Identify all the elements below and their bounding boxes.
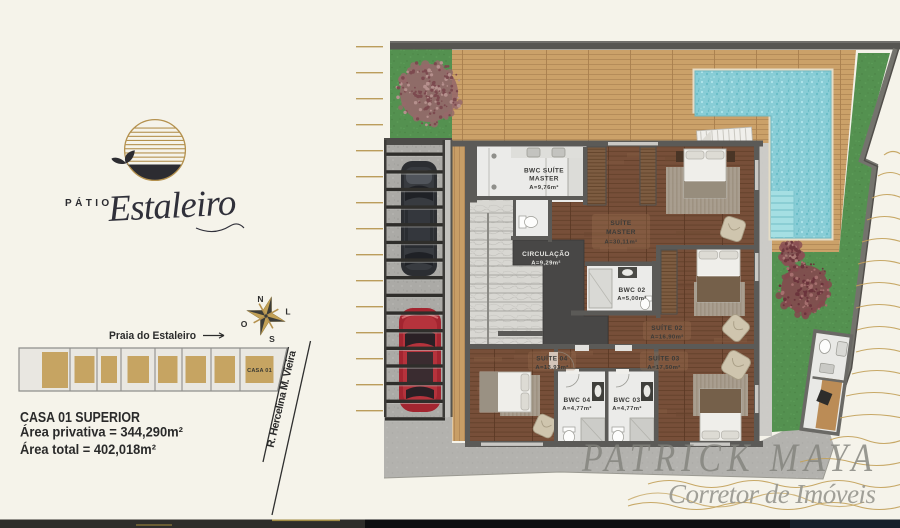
svg-text:PATRICK MAYA: PATRICK MAYA [581,435,878,480]
svg-text:O: O [241,319,248,329]
svg-text:SUÍTE 02: SUÍTE 02 [651,323,682,332]
svg-text:A=30,11m²: A=30,11m² [605,238,638,245]
svg-text:BWC SUÍTE: BWC SUÍTE [524,166,564,175]
svg-text:A=5,00m²: A=5,00m² [617,295,647,302]
svg-text:SUÍTE: SUÍTE [610,218,631,227]
svg-text:BWC 03: BWC 03 [614,397,641,404]
svg-text:L: L [285,307,290,317]
svg-text:S: S [269,334,275,344]
svg-text:CIRCULAÇÃO: CIRCULAÇÃO [522,249,570,258]
svg-text:PÁTIO: PÁTIO [65,196,113,209]
svg-text:Área privativa = 344,290m²: Área privativa = 344,290m² [20,425,183,440]
svg-text:SUÍTE 03: SUÍTE 03 [648,354,679,363]
svg-text:MASTER: MASTER [529,176,559,183]
svg-text:A=4,77m²: A=4,77m² [612,405,642,412]
svg-text:A=9,76m²: A=9,76m² [529,184,559,191]
svg-text:CASA 01: CASA 01 [247,368,272,374]
svg-text:A=9,29m²: A=9,29m² [531,260,561,267]
svg-text:BWC 04: BWC 04 [564,397,591,404]
svg-text:A=4,77m²: A=4,77m² [562,405,592,412]
svg-text:Corretor de Imóveis: Corretor de Imóveis [668,479,876,509]
svg-text:MASTER: MASTER [606,229,636,236]
svg-text:A=16,90m²: A=16,90m² [650,334,683,341]
svg-text:Estaleiro: Estaleiro [106,182,237,230]
svg-text:Praia do Estaleiro: Praia do Estaleiro [109,330,196,342]
svg-text:A=17,50m²: A=17,50m² [647,364,680,371]
svg-text:A=13,93m²: A=13,93m² [535,364,568,371]
svg-text:Área total = 402,018m²: Área total = 402,018m² [20,442,156,457]
svg-text:SUÍTE 04: SUÍTE 04 [536,354,567,363]
svg-text:BWC 02: BWC 02 [619,287,646,294]
svg-text:N: N [257,294,263,304]
